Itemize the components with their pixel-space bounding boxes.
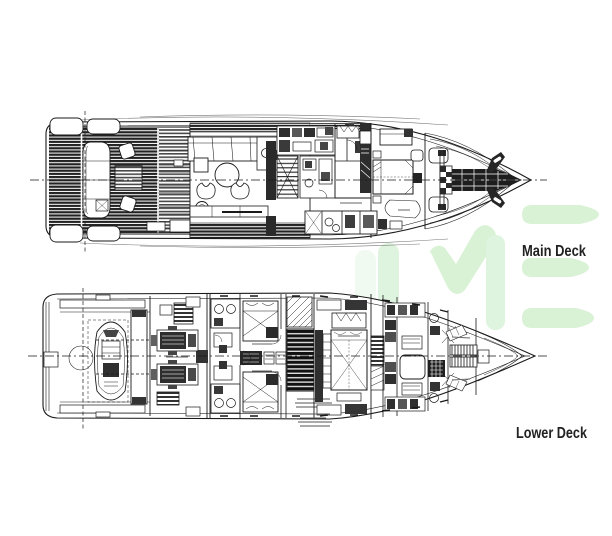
svg-text:Main Deck: Main Deck xyxy=(522,243,586,260)
svg-text:Lower Deck: Lower Deck xyxy=(516,425,587,442)
